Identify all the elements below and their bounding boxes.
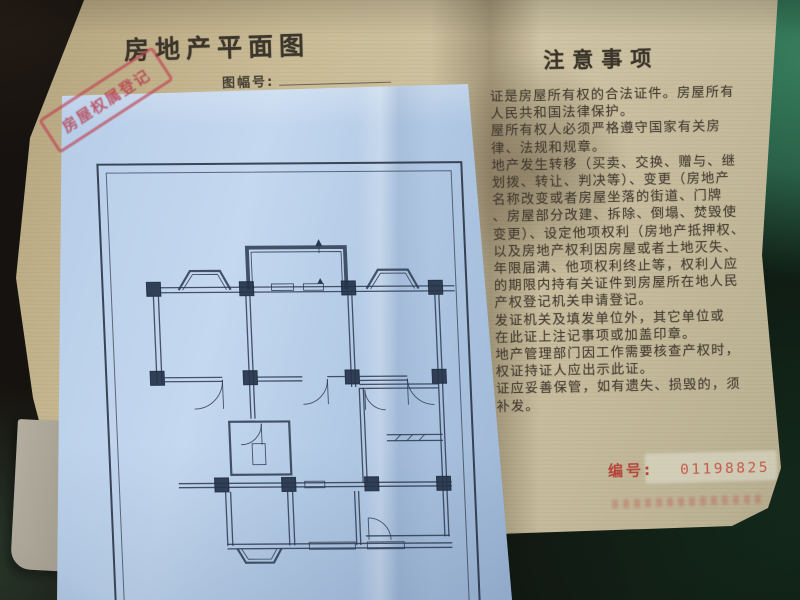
sheet-number-blank-line <box>279 72 391 86</box>
notice-text-block: 证是房屋所有权的合法证件。房屋所有 人民共和国法律保护。 屋所有权人必须严格遵守… <box>490 83 769 415</box>
right-room <box>359 384 450 536</box>
notice-page: 注意事项 证是房屋所有权的合法证件。房屋所有 人民共和国法律保护。 屋所有权人必… <box>489 40 769 415</box>
lower-wall <box>179 476 453 492</box>
serial-value: 01198825 <box>680 460 770 478</box>
faint-print-smudge <box>612 494 762 508</box>
interior-walls <box>147 294 453 538</box>
notice-title: 注意事项 <box>543 40 762 75</box>
floor-plan-drawing <box>50 81 536 600</box>
serial-number-row: 编号: 01198825 <box>608 456 770 481</box>
serial-label: 编号: <box>608 461 653 480</box>
floor-plan-content <box>50 81 536 600</box>
bottom-rooms <box>225 490 453 563</box>
photo-of-property-documents: 房地产平面图 图幅号: 注意事项 证是房屋所有权的合法证件。房屋所有 人民共和国… <box>0 0 800 600</box>
sheet-number-label: 图幅号: <box>222 75 275 91</box>
floor-plan-sheet <box>50 84 515 600</box>
top-exterior-wall <box>146 269 455 296</box>
balcony <box>247 239 347 290</box>
